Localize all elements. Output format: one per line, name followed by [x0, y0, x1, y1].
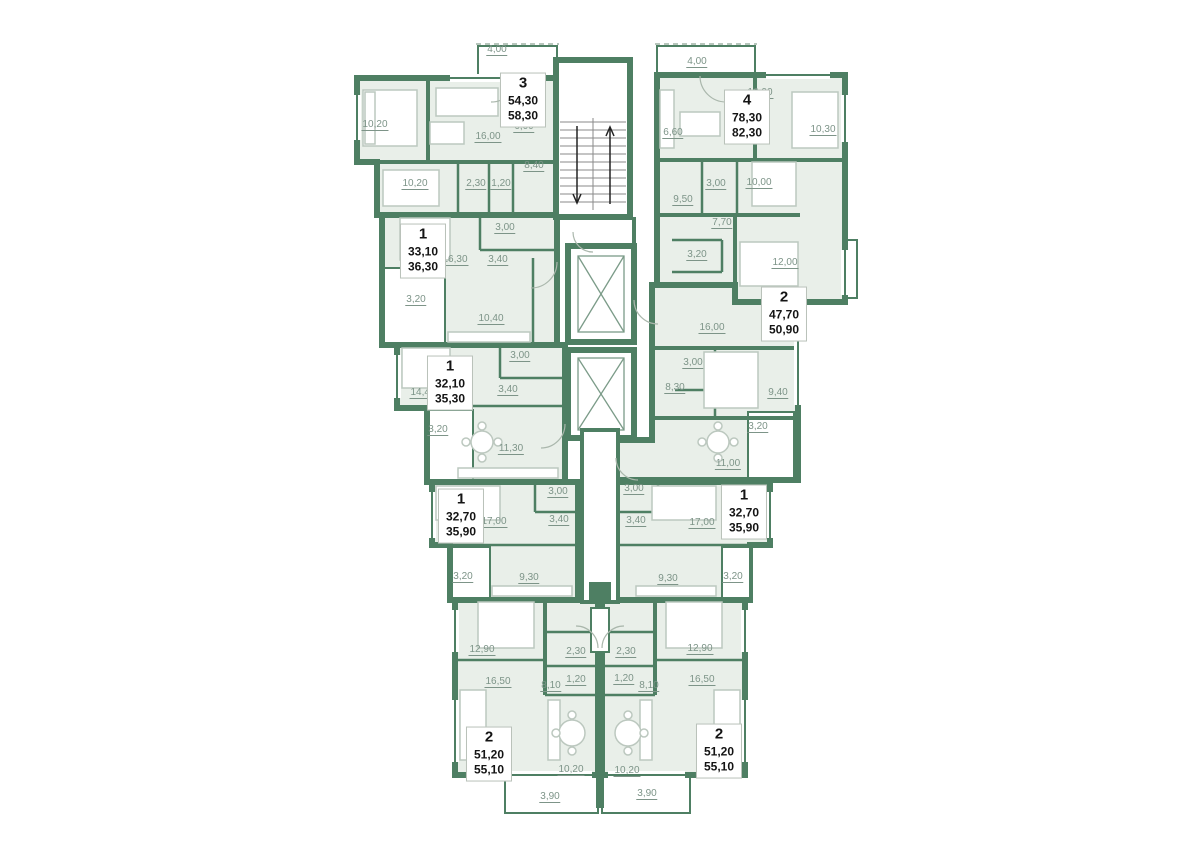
dimension-label: 1,20 — [613, 673, 634, 685]
dimension-label: 11,00 — [715, 458, 741, 470]
dimension-label: 3,90 — [636, 788, 657, 800]
apartment-number: 3 — [508, 75, 538, 94]
labels-layer: 4,0010,2016,006,008,4010,202,301,203,001… — [0, 0, 1200, 848]
dimension-label: 3,40 — [548, 514, 569, 526]
dimension-label: 1,20 — [565, 674, 586, 686]
dimension-label: 10,40 — [477, 313, 504, 325]
apartment-area-living: 54,30 — [508, 93, 538, 109]
apartment-label: 132,1035,30 — [427, 356, 473, 411]
dimension-label: 9,30 — [518, 572, 539, 584]
dimension-label: 12,90 — [468, 644, 495, 656]
dimension-label: 17,00 — [480, 516, 507, 528]
apartment-area-total: 55,10 — [704, 760, 734, 776]
apartment-area-living: 32,70 — [446, 509, 476, 525]
dimension-label: 17,00 — [688, 517, 715, 529]
apartment-area-total: 35,30 — [435, 392, 465, 408]
dimension-label: 9,50 — [672, 194, 693, 206]
dimension-label: 3,20 — [686, 249, 707, 261]
apartment-area-living: 33,10 — [408, 244, 438, 260]
apartment-label: 132,7035,90 — [438, 489, 484, 544]
dimension-label: 10,30 — [809, 124, 836, 136]
dimension-label: 3,20 — [405, 294, 426, 306]
apartment-number: 1 — [435, 358, 465, 377]
apartment-area-living: 78,30 — [732, 110, 762, 126]
dimension-label: 8,40 — [523, 160, 544, 172]
dimension-label: 4,00 — [486, 44, 507, 56]
apartment-label: 247,7050,90 — [761, 287, 807, 342]
dimension-label: 3,40 — [487, 254, 508, 266]
apartment-number: 2 — [769, 289, 799, 308]
dimension-label: 10,00 — [745, 177, 772, 189]
dimension-label: 3,20 — [722, 571, 743, 583]
apartment-area-total: 50,90 — [769, 323, 799, 339]
apartment-area-total: 35,90 — [446, 525, 476, 541]
apartment-area-living: 32,10 — [435, 376, 465, 392]
dimension-label: 10,20 — [557, 764, 584, 776]
apartment-number: 1 — [446, 491, 476, 510]
dimension-label: 2,30 — [615, 646, 636, 658]
apartment-number: 1 — [729, 487, 759, 506]
dimension-label: 12,90 — [686, 643, 713, 655]
dimension-label: 9,40 — [767, 387, 788, 399]
dimension-label: 16,00 — [698, 322, 725, 334]
dimension-label: 11,30 — [498, 443, 524, 455]
dimension-label: 12,00 — [771, 257, 798, 269]
apartment-area-total: 82,30 — [732, 126, 762, 142]
floor-plan: 4,0010,2016,006,008,4010,202,301,203,001… — [0, 0, 1200, 848]
apartment-area-total: 36,30 — [408, 260, 438, 276]
dimension-label: 6,60 — [662, 127, 683, 139]
dimension-label: 3,20 — [452, 571, 473, 583]
dimension-label: 3,90 — [539, 791, 560, 803]
apartment-number: 4 — [732, 92, 762, 111]
dimension-label: 8,10 — [638, 680, 659, 692]
dimension-label: 8,10 — [540, 680, 561, 692]
dimension-label: 10,20 — [401, 178, 428, 190]
dimension-label: 1,20 — [490, 178, 511, 190]
apartment-label: 132,7035,90 — [721, 485, 767, 540]
dimension-label: 3,00 — [509, 350, 530, 362]
dimension-label: 3,20 — [427, 424, 448, 436]
dimension-label: 8,30 — [664, 382, 685, 394]
dimension-label: 4,00 — [686, 56, 707, 68]
apartment-label: 354,3058,30 — [500, 73, 546, 128]
apartment-area-living: 51,20 — [704, 744, 734, 760]
dimension-label: 16,00 — [474, 131, 501, 143]
dimension-label: 3,40 — [625, 515, 646, 527]
dimension-label: 3,00 — [705, 178, 726, 190]
dimension-label: 3,00 — [494, 222, 515, 234]
dimension-label: 3,20 — [747, 421, 768, 433]
apartment-number: 1 — [408, 226, 438, 245]
apartment-label: 251,2055,10 — [466, 727, 512, 782]
apartment-number: 2 — [704, 726, 734, 745]
dimension-label: 16,50 — [688, 674, 715, 686]
apartment-area-living: 32,70 — [729, 505, 759, 521]
apartment-area-living: 47,70 — [769, 307, 799, 323]
dimension-label: 10,20 — [613, 765, 640, 777]
apartment-area-total: 35,90 — [729, 521, 759, 537]
apartment-number: 2 — [474, 729, 504, 748]
dimension-label: 3,00 — [623, 483, 644, 495]
dimension-label: 2,30 — [565, 646, 586, 658]
apartment-area-living: 51,20 — [474, 747, 504, 763]
apartment-label: 251,2055,10 — [696, 724, 742, 779]
dimension-label: 3,00 — [547, 486, 568, 498]
dimension-label: 10,20 — [361, 119, 388, 131]
dimension-label: 7,70 — [711, 217, 732, 229]
apartment-label: 133,1036,30 — [400, 224, 446, 279]
dimension-label: 2,30 — [465, 178, 486, 190]
apartment-area-total: 58,30 — [508, 109, 538, 125]
apartment-area-total: 55,10 — [474, 763, 504, 779]
dimension-label: 3,40 — [497, 384, 518, 396]
dimension-label: 16,50 — [484, 676, 511, 688]
dimension-label: 3,00 — [682, 357, 703, 369]
dimension-label: 9,30 — [657, 573, 678, 585]
apartment-label: 478,3082,30 — [724, 90, 770, 145]
